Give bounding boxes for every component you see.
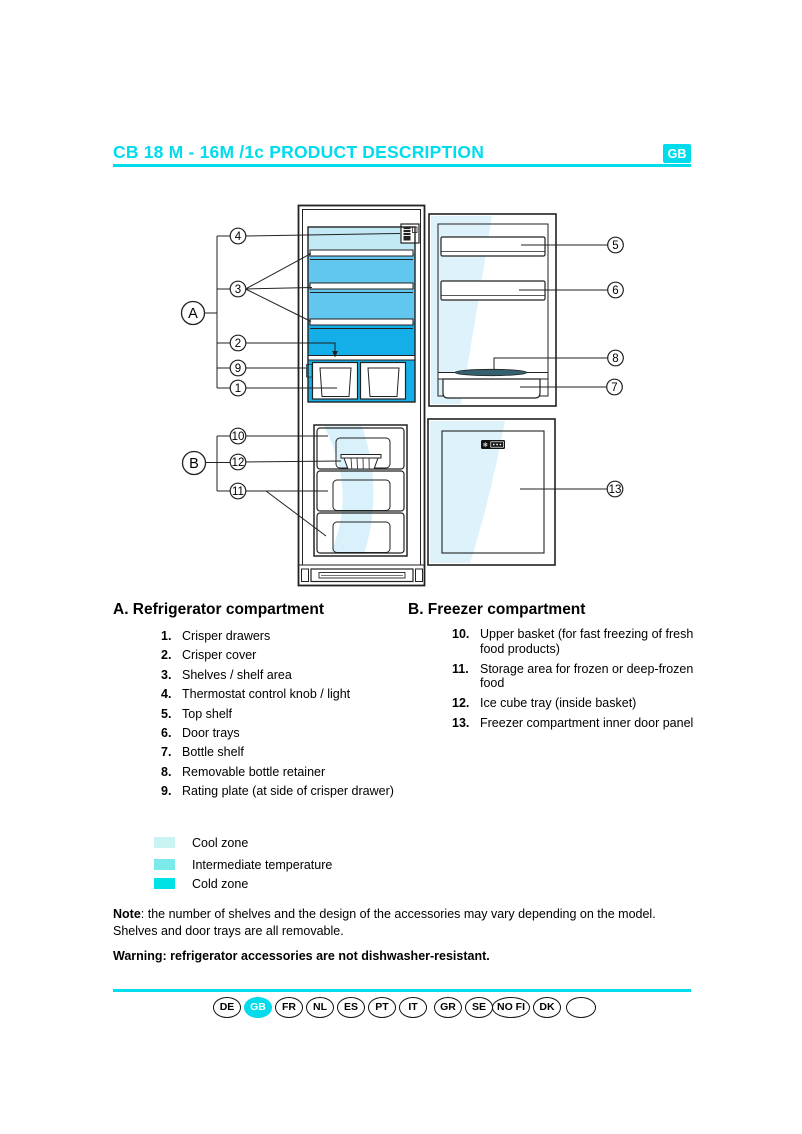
item-number: 13.	[452, 716, 480, 731]
lang-pt[interactable]: PT	[368, 997, 396, 1018]
svg-text:10: 10	[232, 431, 245, 443]
item-text: Removable bottle retainer	[182, 763, 325, 782]
freezer-door-panel: ❄	[428, 419, 555, 565]
item-text: Door trays	[182, 724, 240, 743]
callout-7: 7	[607, 379, 623, 395]
list-item: 11.Storage area for frozen or deep-froze…	[408, 662, 700, 691]
item-text: Thermostat control knob / light	[182, 685, 350, 704]
door-tray-top	[441, 237, 545, 256]
callout-5: 5	[608, 237, 624, 253]
item-number: 11.	[452, 662, 480, 677]
legend-swatch-intermediate	[154, 859, 175, 871]
lang-dk[interactable]: DK	[533, 997, 561, 1018]
lang-gr[interactable]: GR	[434, 997, 462, 1018]
callout-12: 12	[230, 454, 246, 470]
list-item: 1.Crisper drawers	[113, 627, 405, 646]
svg-text:5: 5	[612, 240, 618, 252]
svg-text:8: 8	[612, 353, 618, 365]
item-number: 12.	[452, 696, 480, 711]
crisper-cover	[308, 356, 415, 361]
note-text: : the number of shelves and the design o…	[141, 907, 656, 921]
section-freezer: B. Freezer compartment 10.Upper basket (…	[408, 602, 700, 736]
item-text: Freezer compartment inner door panel	[480, 716, 695, 731]
item-number: 4.	[161, 685, 182, 704]
callout-6: 6	[608, 282, 624, 298]
callout-1: 1	[230, 380, 246, 396]
item-text: Crisper drawers	[182, 627, 270, 646]
callout-3: 3	[230, 281, 246, 297]
manual-page: CB 18 M - 16M /1c PRODUCT DESCRIPTION GB	[0, 0, 802, 1134]
language-selector: DE GB FR NL ES PT IT GR SE NO FI DK	[213, 997, 599, 1018]
list-item: 5.Top shelf	[113, 705, 405, 724]
item-text: Upper basket (for fast freezing of fresh…	[480, 627, 695, 656]
lang-es[interactable]: ES	[337, 997, 365, 1018]
legend-swatch-cool	[154, 837, 175, 849]
lang-it[interactable]: IT	[399, 997, 427, 1018]
svg-text:❄: ❄	[483, 442, 488, 449]
item-text: Bottle shelf	[182, 743, 244, 762]
note-line2: Shelves and door trays are all removable…	[113, 923, 701, 940]
item-number: 3.	[161, 666, 182, 685]
list-item: 12.Ice cube tray (inside basket)	[408, 696, 700, 711]
svg-text:A: A	[188, 306, 198, 322]
warning-text: Warning: refrigerator accessories are no…	[113, 949, 701, 963]
bottle-shelf	[438, 369, 548, 398]
list-item: 7.Bottle shelf	[113, 743, 405, 762]
svg-text:4: 4	[235, 231, 242, 243]
callout-8: 8	[608, 350, 624, 366]
list-item: 10.Upper basket (for fast freezing of fr…	[408, 627, 700, 656]
item-number: 10.	[452, 627, 480, 642]
item-text: Shelves / shelf area	[182, 666, 292, 685]
legend-row-cold: Cold zone	[154, 877, 248, 890]
legend-row-intermediate: Intermediate temperature	[154, 858, 332, 871]
item-number: 5.	[161, 705, 182, 724]
lang-se[interactable]: SE	[465, 997, 493, 1018]
callout-10: 10	[230, 428, 246, 444]
svg-text:11: 11	[232, 486, 244, 498]
language-badge: GB	[663, 144, 691, 163]
note-label: Note	[113, 907, 141, 921]
item-number: 8.	[161, 763, 182, 782]
legend-label: Cool zone	[192, 836, 248, 850]
note-paragraph: Note: the number of shelves and the desi…	[113, 906, 701, 939]
svg-text:B: B	[189, 456, 199, 472]
bottle-retainer	[455, 369, 527, 375]
item-number: 2.	[161, 646, 182, 665]
list-item: 13.Freezer compartment inner door panel	[408, 716, 700, 731]
item-number: 1.	[161, 627, 182, 646]
title-rule	[113, 164, 691, 167]
svg-text:3: 3	[235, 284, 241, 296]
legend-label: Intermediate temperature	[192, 858, 332, 872]
list-item: 6.Door trays	[113, 724, 405, 743]
svg-text:12: 12	[232, 457, 245, 469]
page-title: CB 18 M - 16M /1c PRODUCT DESCRIPTION	[113, 142, 658, 163]
svg-text:1: 1	[235, 383, 241, 395]
section-refrigerator: A. Refrigerator compartment 1.Crisper dr…	[113, 602, 405, 802]
lang-no-fi[interactable]: NO FI	[492, 997, 530, 1018]
item-text: Rating plate (at side of crisper drawer)	[182, 782, 394, 801]
lang-nl[interactable]: NL	[306, 997, 334, 1018]
legend-row-cool: Cool zone	[154, 836, 248, 849]
lang-de[interactable]: DE	[213, 997, 241, 1018]
item-text: Crisper cover	[182, 646, 256, 665]
list-item: 2.Crisper cover	[113, 646, 405, 665]
list-item: 3.Shelves / shelf area	[113, 666, 405, 685]
list-item: 4.Thermostat control knob / light	[113, 685, 405, 704]
fridge-door-panel	[429, 214, 556, 406]
svg-text:2: 2	[235, 338, 241, 350]
lang-blank[interactable]	[566, 997, 596, 1018]
refrigerator-interior	[307, 224, 420, 402]
svg-text:9: 9	[235, 363, 241, 375]
lang-gb[interactable]: GB	[244, 997, 272, 1018]
item-number: 9.	[161, 782, 182, 801]
section-a-heading: A. Refrigerator compartment	[113, 602, 405, 618]
freezer-rating-label: ❄	[481, 440, 505, 449]
callout-11: 11	[230, 483, 246, 499]
callout-b: B	[183, 452, 206, 475]
item-number: 7.	[161, 743, 182, 762]
fridge-diagram: ❄	[130, 200, 662, 596]
section-b-heading: B. Freezer compartment	[408, 602, 700, 618]
callout-a: A	[182, 302, 205, 325]
ice-cube-tray	[341, 455, 381, 470]
svg-text:7: 7	[611, 382, 617, 394]
callout-4: 4	[230, 228, 246, 244]
item-text: Storage area for frozen or deep-frozen f…	[480, 662, 695, 691]
svg-text:13: 13	[609, 484, 622, 496]
callout-2: 2	[230, 335, 246, 351]
legend-swatch-cold	[154, 878, 175, 890]
cool-zone-area	[308, 227, 415, 253]
item-text: Ice cube tray (inside basket)	[480, 696, 695, 711]
list-item: 8.Removable bottle retainer	[113, 763, 405, 782]
item-number: 6.	[161, 724, 182, 743]
svg-text:6: 6	[612, 285, 618, 297]
callout-9: 9	[230, 360, 246, 376]
footer-rule	[113, 989, 691, 992]
lang-fr[interactable]: FR	[275, 997, 303, 1018]
legend-label: Cold zone	[192, 877, 248, 891]
list-item: 9.Rating plate (at side of crisper drawe…	[113, 782, 405, 801]
item-text: Top shelf	[182, 705, 232, 724]
callout-13: 13	[607, 481, 623, 497]
